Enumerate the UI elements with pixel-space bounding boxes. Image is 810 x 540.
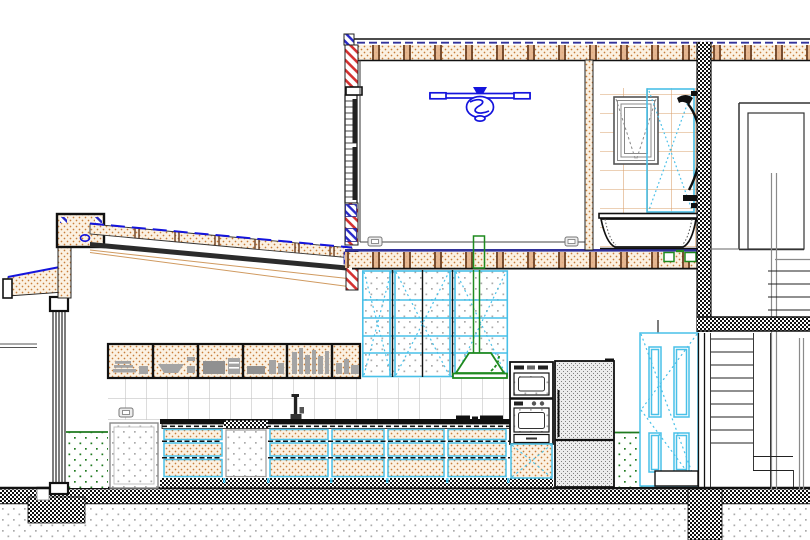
- backsplash-tile-grid: [108, 378, 510, 420]
- power-outlet-icon-right: [565, 237, 578, 246]
- double-wall-oven-icon: [510, 362, 553, 478]
- sink-panel: [226, 430, 266, 477]
- fascia-gutter: [3, 279, 12, 298]
- section-drawing: [0, 0, 810, 540]
- power-outlet-icon-left: [368, 237, 382, 246]
- oven-base-cabinet: [511, 444, 552, 478]
- cad-drawing-canvas: [0, 0, 810, 540]
- roof-support-wall: [58, 247, 71, 298]
- green-fixture-zone-left: [66, 432, 108, 488]
- bathtub-icon: [599, 214, 698, 249]
- sash-section-upper: [353, 99, 358, 143]
- sink-section-hatch: [224, 421, 268, 429]
- bathroom-section: [585, 60, 700, 262]
- toe-kick-band: [160, 478, 553, 488]
- left-footing: [28, 497, 85, 523]
- stair-landing-slab: [697, 317, 810, 331]
- window-sill-block: [50, 483, 68, 494]
- kitchen-window-wall: [50, 297, 68, 494]
- bathroom-window: [614, 97, 658, 164]
- bathroom-partition-wall: [585, 60, 593, 250]
- refrigerator-icon: [555, 359, 614, 488]
- window-head-block: [50, 297, 68, 311]
- drawer-stacks: [162, 430, 510, 477]
- party-wall: [697, 42, 711, 332]
- right-footing: [688, 489, 722, 540]
- door-threshold-step: [655, 471, 698, 486]
- tall-cabinet: [110, 423, 158, 488]
- upper-cabinets: [108, 344, 360, 378]
- countertop: [160, 419, 510, 424]
- ground-and-foundations: [0, 487, 810, 540]
- four-panel-door-icon: [640, 320, 705, 487]
- kitchen-wall-outlet: [119, 408, 133, 417]
- sash-section-lower: [353, 147, 358, 200]
- glazed-screen: [362, 270, 508, 378]
